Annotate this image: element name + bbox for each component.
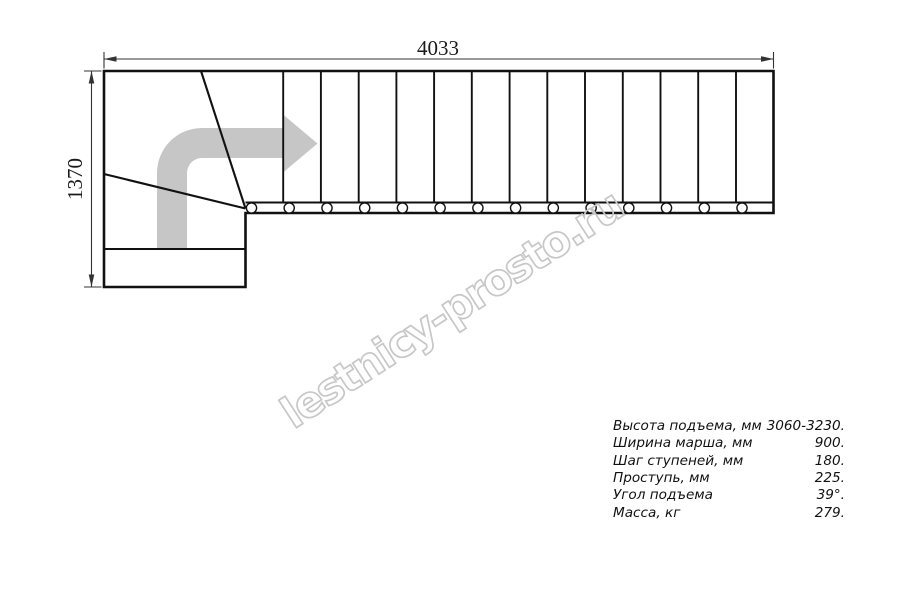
dimension-lines xyxy=(84,52,774,287)
baluster-circle xyxy=(322,203,332,213)
baluster-circle xyxy=(246,203,256,213)
step-lines xyxy=(283,71,736,203)
baluster-circle xyxy=(284,203,294,213)
spec-value: 279. xyxy=(815,505,845,522)
dimension-arrowheads xyxy=(89,56,774,287)
spec-row-step-rise: Шаг ступеней, мм 180. xyxy=(613,453,845,470)
stair-outline xyxy=(104,71,774,287)
spec-value: 225. xyxy=(815,470,845,487)
staircase-drawing-page: { "title": "L-shaped staircase plan draw… xyxy=(0,0,900,600)
baluster-circle xyxy=(473,203,483,213)
width-dimension-label: 4033 xyxy=(417,36,459,60)
spec-value: 3060-3230. xyxy=(767,418,845,435)
spec-row-tread: Проступь, мм 225. xyxy=(613,470,845,487)
spec-label: Проступь, мм xyxy=(613,470,710,487)
baluster-circle xyxy=(737,203,747,213)
baluster-circle xyxy=(435,203,445,213)
spec-value: 900. xyxy=(815,435,845,452)
baluster-circle xyxy=(586,203,596,213)
spec-label: Угол подъема xyxy=(613,487,713,504)
baluster-circles xyxy=(246,203,747,213)
spec-label: Шаг ступеней, мм xyxy=(613,453,743,470)
baluster-circle xyxy=(548,203,558,213)
spec-label: Высота подъема, мм xyxy=(613,418,762,435)
height-dimension-label: 1370 xyxy=(63,158,87,200)
spec-value: 180. xyxy=(815,453,845,470)
spec-row-angle: Угол подъема 39°. xyxy=(613,487,845,504)
spec-label: Масса, кг xyxy=(613,505,680,522)
spec-row-mass: Масса, кг 279. xyxy=(613,505,845,522)
baluster-circle xyxy=(699,203,709,213)
spec-value: 39°. xyxy=(817,487,845,504)
baluster-circle xyxy=(360,203,370,213)
spec-row-flight-width: Ширина марша, мм 900. xyxy=(613,435,845,452)
baluster-circle xyxy=(397,203,407,213)
spec-row-height: Высота подъема, мм 3060-3230. xyxy=(613,418,845,435)
spec-table: Высота подъема, мм 3060-3230. Ширина мар… xyxy=(613,418,845,522)
baluster-circle xyxy=(510,203,520,213)
baluster-circle xyxy=(661,203,671,213)
baluster-circle xyxy=(624,203,634,213)
spec-label: Ширина марша, мм xyxy=(613,435,753,452)
